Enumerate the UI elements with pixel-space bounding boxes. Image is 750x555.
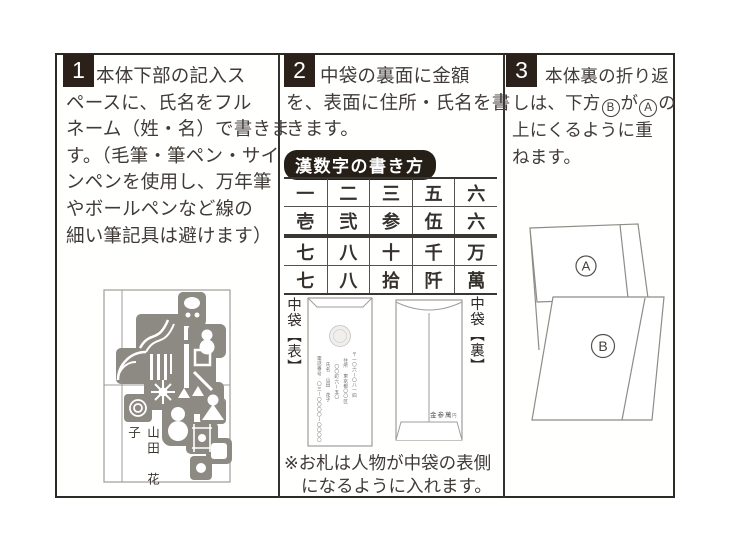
kanji-cell: 八 xyxy=(327,265,370,293)
column-divider-2 xyxy=(503,55,505,498)
front-name-text: 氏名 山田 花子 xyxy=(326,362,331,444)
kanji-cell: 十 xyxy=(369,238,412,265)
front-address-block: 電話番号 〇三ー〇〇〇〇ー〇〇〇〇 氏名 山田 花子 〇〇町六ー五〇 住所 東京… xyxy=(317,352,369,444)
step-3-line: しは、下方BがAの xyxy=(512,90,674,118)
banknote-note: ※お札は人物が中袋の表側 になるように入れます。 xyxy=(284,452,492,498)
step-3-line: ねます。 xyxy=(512,144,674,171)
kanji-table-upper: 一 二 三 五 六 壱 弐 参 伍 六 xyxy=(284,177,497,236)
step-1-text: 本体下部の記入ス ペースに、氏名をフル ネーム（姓・名）で書きま す。（毛筆・筆… xyxy=(66,63,276,249)
kanji-table-lower: 七 八 十 千 万 七 八 拾 阡 萬 xyxy=(284,236,497,295)
flap-b-shape xyxy=(532,297,664,420)
kanji-cell: 七 xyxy=(284,265,327,293)
instruction-sheet: 1 本体下部の記入ス ペースに、氏名をフル ネーム（姓・名）で書きま す。（毛筆… xyxy=(0,0,750,555)
step-1-line: ンペンを使用し、万年筆 xyxy=(66,169,276,196)
envelope-name-text: 山田 花子 xyxy=(124,426,162,490)
step-3-line: 上にくるように重 xyxy=(512,117,674,144)
amount-text: 金参萬 xyxy=(430,410,453,419)
kanji-cell: 六 xyxy=(454,179,497,206)
kanji-cell: 二 xyxy=(327,179,370,206)
front-tel-text: 電話番号 〇三ー〇〇〇〇ー〇〇〇〇 xyxy=(317,356,322,444)
kanji-cell: 壱 xyxy=(284,206,327,234)
kanji-cell: 六 xyxy=(454,206,497,234)
step-2-line: を、表面に住所・氏名を書 xyxy=(286,90,502,117)
step-1-line: やボールペンなど線の xyxy=(66,196,276,223)
step-1-line: す。（毛筆・筆ペン・サイ xyxy=(66,143,276,170)
kanji-cell: 五 xyxy=(412,179,455,206)
step-1-line: ネーム（姓・名）で書きま xyxy=(66,116,276,143)
inner-envelope-back-label: 中袋【裏】 xyxy=(466,296,487,376)
step-3-line: 本体裏の折り返 xyxy=(512,63,674,90)
step-3-line-part: が xyxy=(621,93,639,113)
kanji-cell: 一 xyxy=(284,179,327,206)
inner-envelope-back-illustration: 金参萬 円 xyxy=(392,292,466,450)
step-3-text: 本体裏の折り返 しは、下方BがAの 上にくるように重 ねます。 xyxy=(512,63,674,171)
fold-flaps-illustration: A B xyxy=(508,210,674,434)
flap-a-label: A xyxy=(582,259,591,274)
front-addr2-text: 〇〇町六ー五〇 xyxy=(335,364,340,444)
kanji-cell: 伍 xyxy=(412,206,455,234)
front-postal-text: 〒一〇六ー〇八一四 xyxy=(352,352,357,444)
step-2-line: きます。 xyxy=(286,116,502,143)
decorated-envelope-illustration xyxy=(102,288,232,484)
front-addr1-text: 住所 東京都〇〇区 xyxy=(343,358,348,444)
step-3-line-part: しは、下方 xyxy=(512,93,601,113)
kanji-cell: 萬 xyxy=(454,265,497,293)
kanji-cell: 万 xyxy=(454,238,497,265)
note-line-1: ※お札は人物が中袋の表側 xyxy=(284,452,492,475)
step-1-line: 本体下部の記入ス xyxy=(66,63,276,90)
kanji-numerals-title: 漢数字の書き方 xyxy=(284,150,436,180)
circled-b-inline: B xyxy=(602,99,620,117)
watermark-seal-icon xyxy=(330,326,351,347)
kanji-cell: 三 xyxy=(369,179,412,206)
step-1-line: ペースに、氏名をフル xyxy=(66,90,276,117)
step-2-text: 中袋の裏面に金額 を、表面に住所・氏名を書 きます。 xyxy=(286,63,502,143)
kanji-cell: 参 xyxy=(369,206,412,234)
circled-a-inline: A xyxy=(639,99,657,117)
kanji-cell: 拾 xyxy=(369,265,412,293)
inner-envelope-front-label: 中袋【表】 xyxy=(283,297,304,377)
kanji-cell: 八 xyxy=(327,238,370,265)
kanji-cell: 千 xyxy=(412,238,455,265)
kanji-cell: 七 xyxy=(284,238,327,265)
step-3-line-part: の xyxy=(658,93,676,113)
kanji-cell: 阡 xyxy=(412,265,455,293)
note-line-2: になるように入れます。 xyxy=(284,475,492,498)
step-1-line: 細い筆記具は避けます） xyxy=(66,223,276,250)
flap-b-label: B xyxy=(598,338,607,354)
kanji-cell: 弐 xyxy=(327,206,370,234)
step-2-line: 中袋の裏面に金額 xyxy=(286,63,502,90)
